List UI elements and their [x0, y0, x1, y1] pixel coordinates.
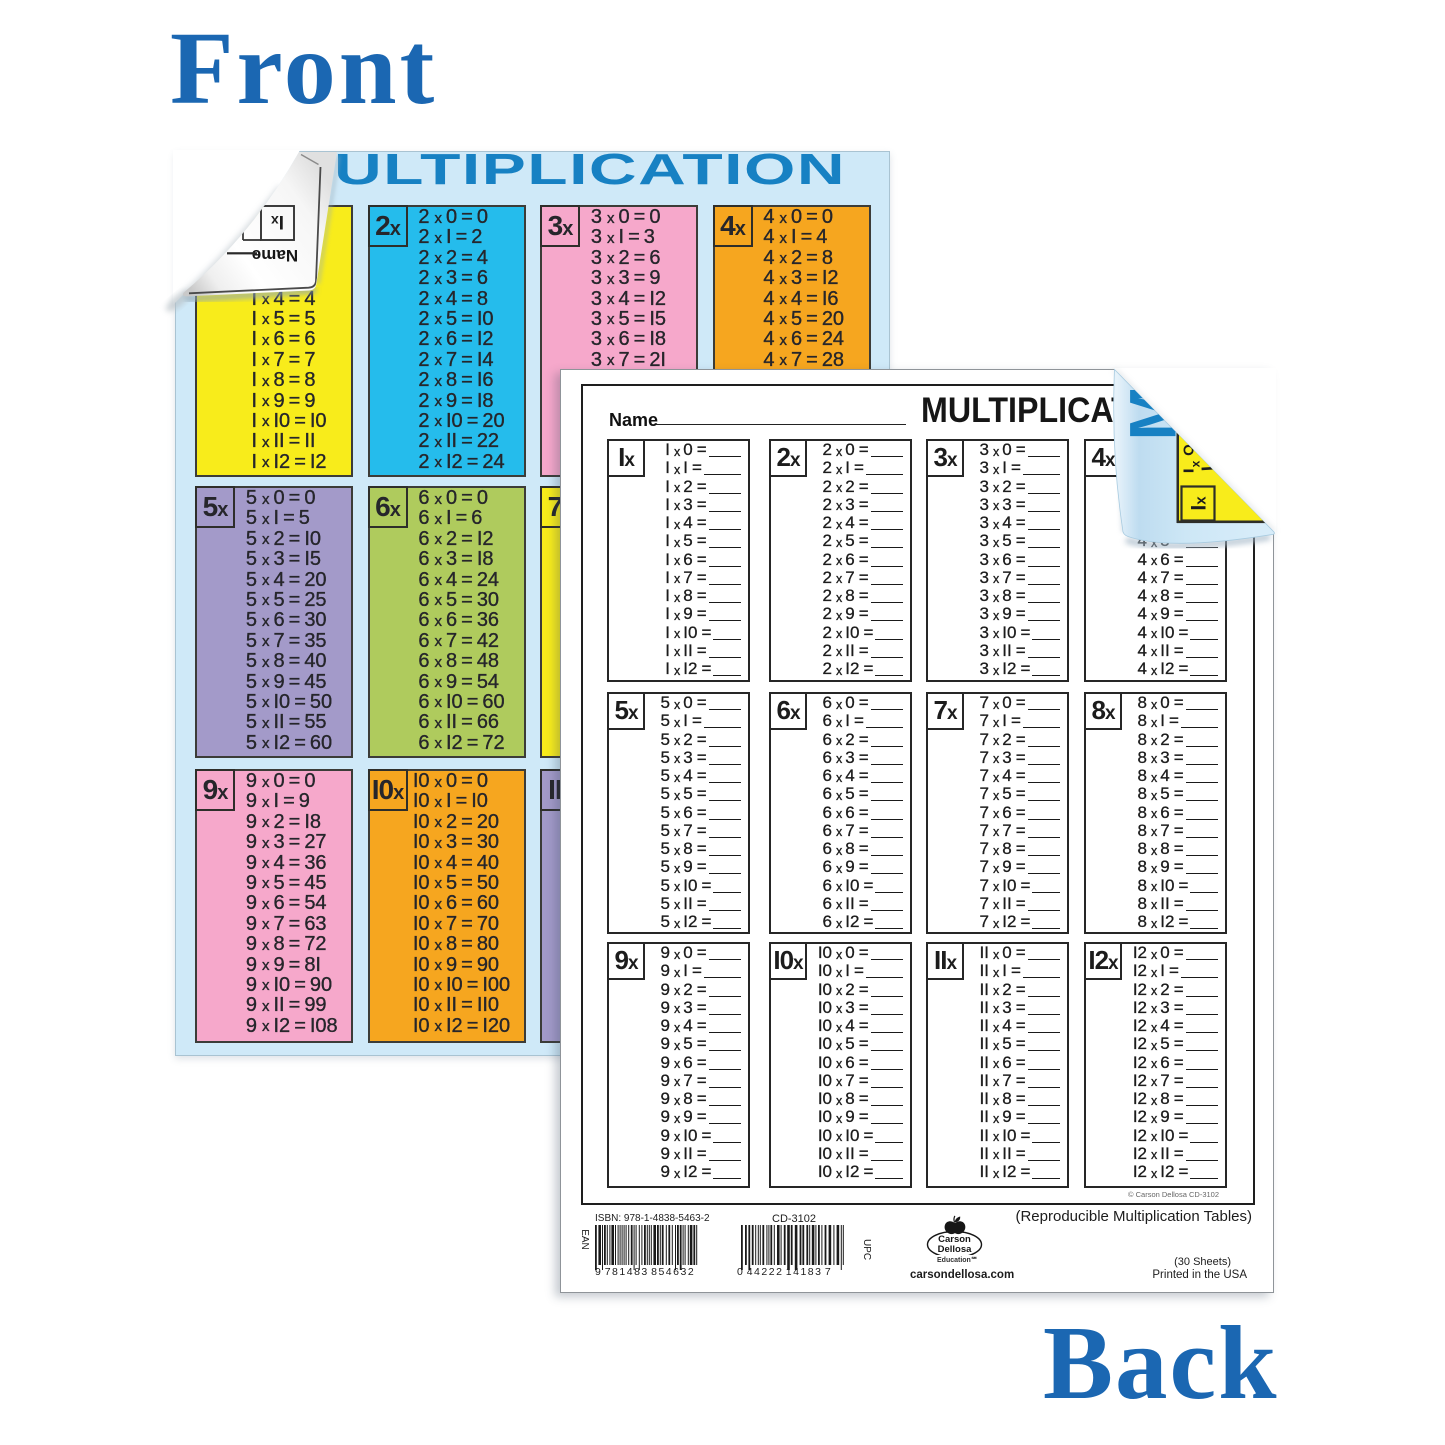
svg-text:Dellosa: Dellosa	[938, 1244, 973, 1255]
